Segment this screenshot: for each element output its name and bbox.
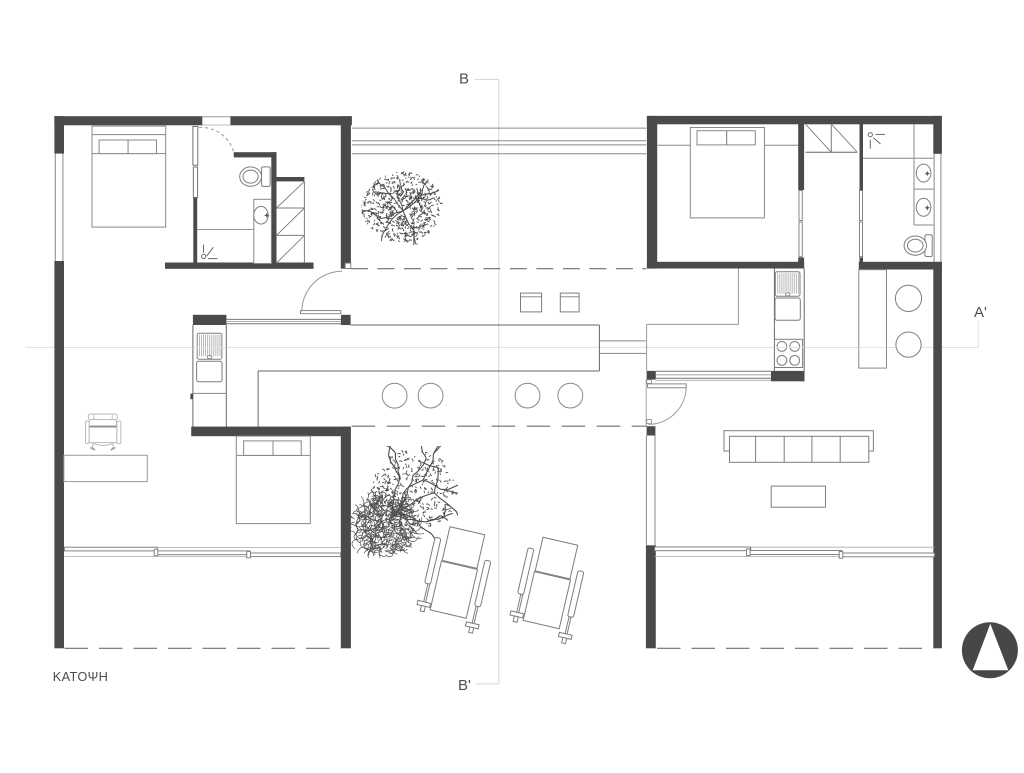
svg-text:B: B (459, 71, 469, 88)
svg-text:A': A' (974, 304, 987, 321)
svg-text:B': B' (458, 677, 471, 694)
svg-text:ΚΑΤΟΨΗ: ΚΑΤΟΨΗ (53, 669, 108, 684)
